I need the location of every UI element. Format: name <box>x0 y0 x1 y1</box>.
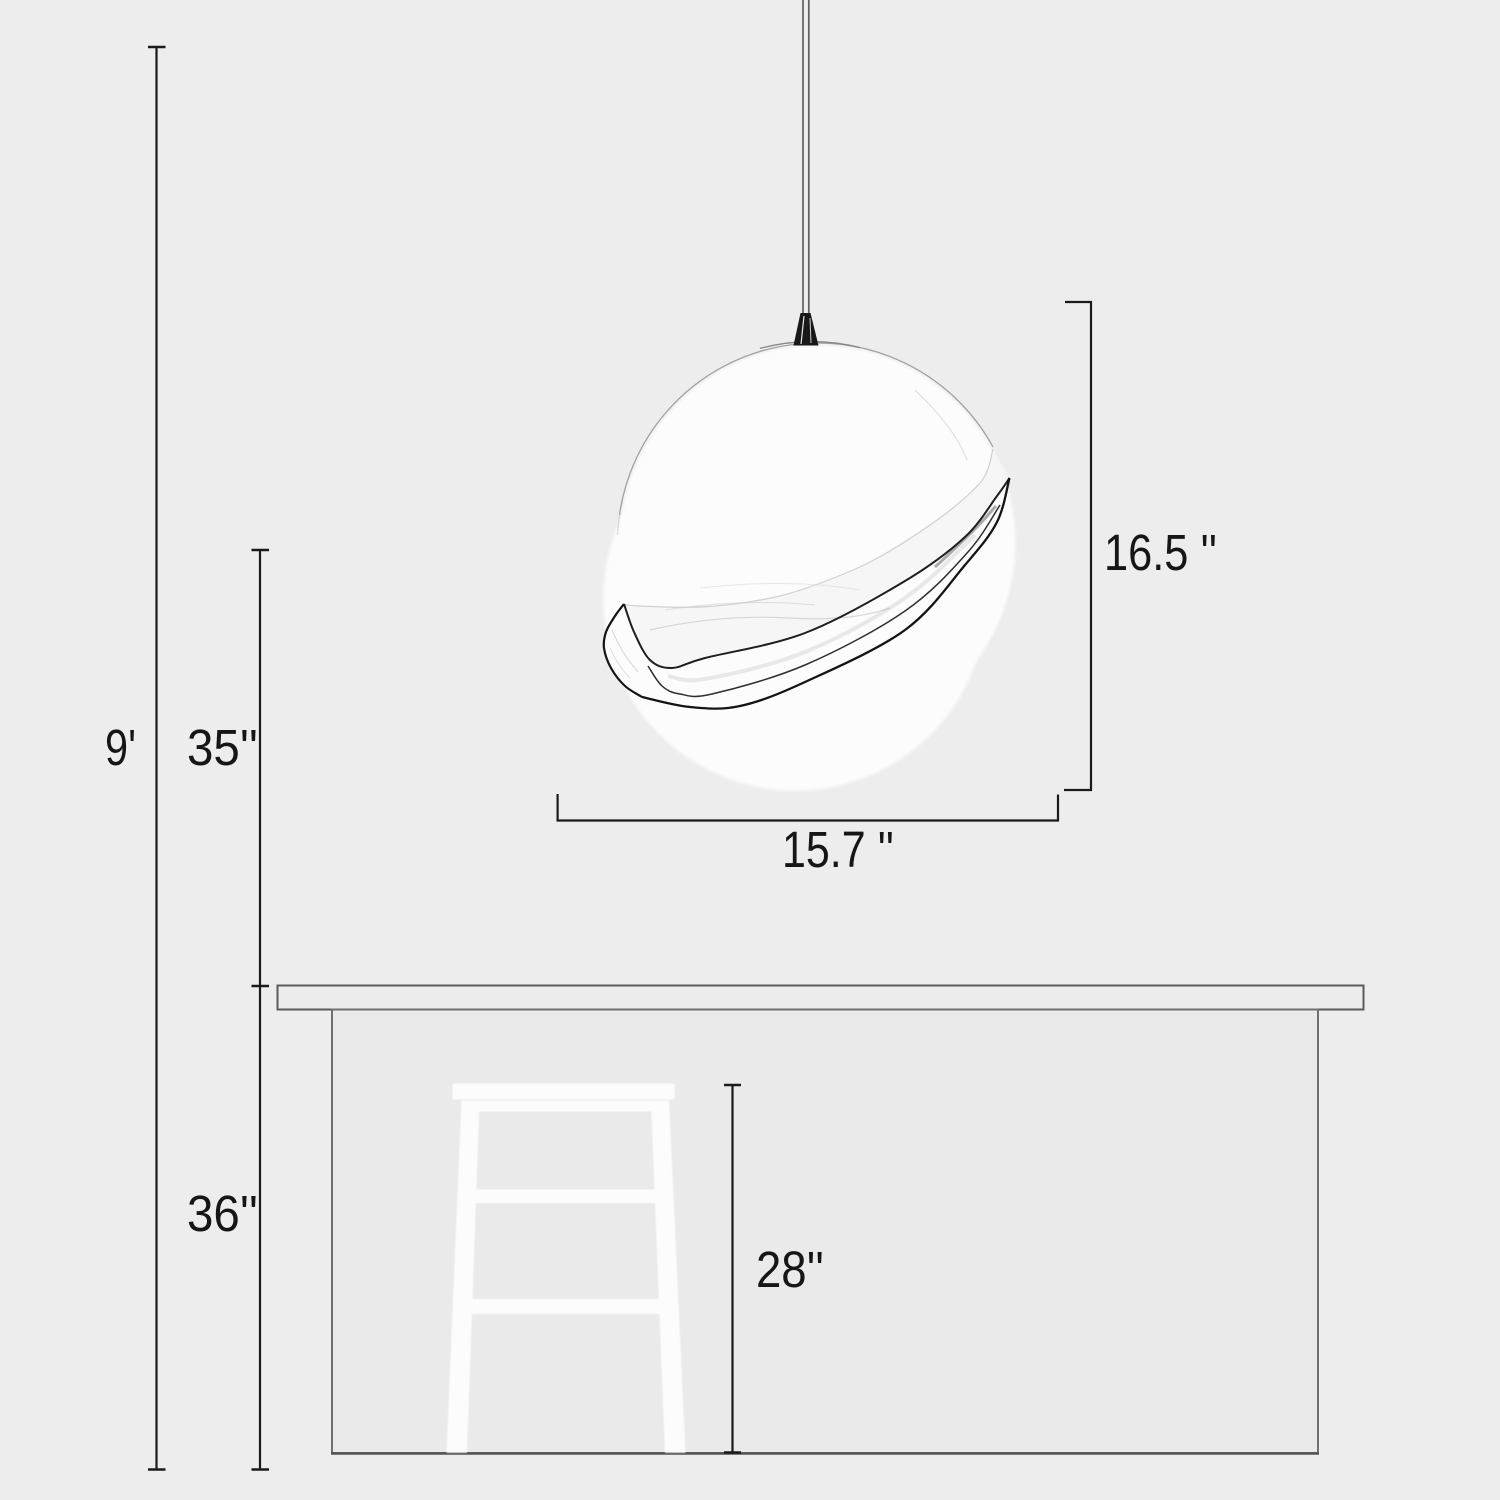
svg-text:15.7 '': 15.7 '' <box>782 821 894 878</box>
svg-text:36'': 36'' <box>187 1185 258 1242</box>
svg-text:35'': 35'' <box>187 719 258 776</box>
svg-text:16.5 '': 16.5 '' <box>1104 524 1217 581</box>
svg-text:28'': 28'' <box>756 1241 824 1298</box>
svg-text:9': 9' <box>105 719 136 776</box>
